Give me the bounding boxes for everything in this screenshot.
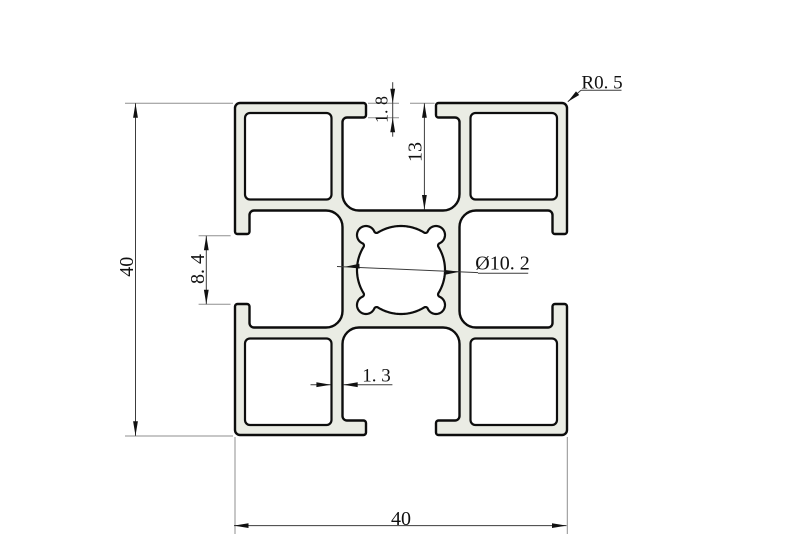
svg-text:Ø10. 2: Ø10. 2 (475, 253, 529, 275)
svg-text:13: 13 (405, 142, 427, 162)
svg-text:1. 8: 1. 8 (372, 96, 392, 123)
svg-text:8. 4: 8. 4 (187, 254, 209, 284)
svg-text:40: 40 (116, 257, 138, 277)
svg-text:R0. 5: R0. 5 (581, 73, 622, 94)
svg-text:1. 3: 1. 3 (362, 366, 391, 387)
svg-text:40: 40 (391, 508, 411, 530)
